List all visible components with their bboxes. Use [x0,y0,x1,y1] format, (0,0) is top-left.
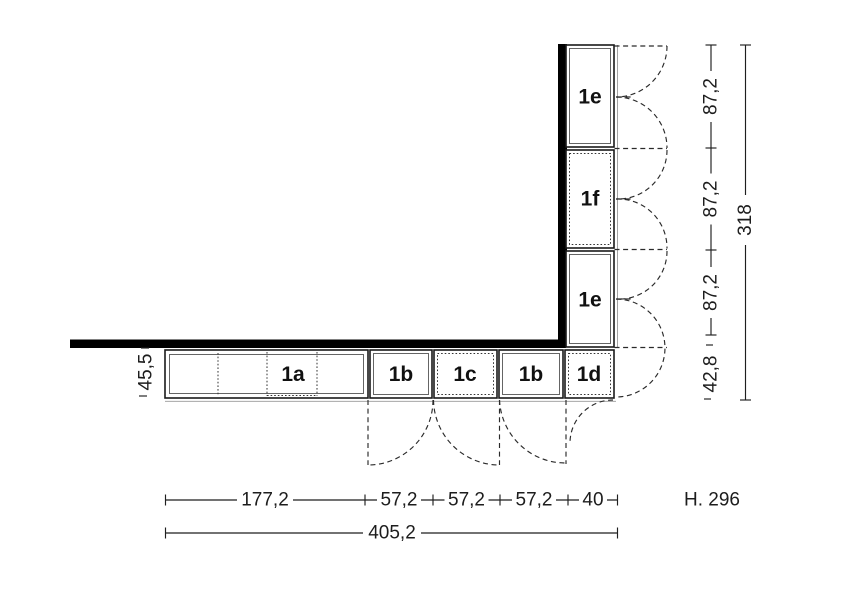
right-dimension-lines: 87,2 87,2 87,2 42,8 318 [700,45,757,400]
row-unit-label-1: 1b [389,363,414,386]
dim-bottom-0: 177,2 [241,490,289,511]
door-swing-arc [368,400,433,465]
stack-unit-label-1: 1f [581,188,601,211]
floor-plan-canvas: 1e 1f 1e 1a 1b 1c 1b 1d [0,0,841,601]
door-swings-row [368,400,613,465]
row-units: 1a 1b 1c 1b 1d [165,350,616,401]
row-unit-label-4: 1d [577,363,602,386]
dim-bottom-3: 57,2 [516,490,553,511]
dim-right-1: 87,2 [701,181,722,218]
door-swing-arc [570,400,613,443]
row-unit-label-2: 1c [453,363,477,386]
dim-right-2: 87,2 [701,274,722,311]
wall-horizontal [70,340,566,349]
left-depth-dimension: 45,5 [136,348,157,396]
dim-right-0: 87,2 [701,78,722,115]
dim-side-depth: 45,5 [136,354,157,391]
dim-bottom-1: 57,2 [381,490,418,511]
door-swing-arc [616,199,667,249]
door-swing-arc [616,150,667,199]
door-swings-stack [615,46,668,397]
dim-bottom-4: 40 [582,490,603,511]
dim-right-total: 318 [735,204,756,236]
door-swing-arc [616,97,667,148]
walls [70,44,567,348]
door-swing-arc [616,46,667,97]
dim-bottom-2: 57,2 [448,490,485,511]
bottom-dimension-lines: 177,2 57,2 57,2 57,2 40 405,2 H. 296 [166,489,740,544]
cabinet-layout-diagram: 1e 1f 1e 1a 1b 1c 1b 1d [0,0,841,601]
row-unit-label-3: 1b [519,363,544,386]
row-unit-label-0: 1a [281,363,305,386]
height-note: H. 296 [684,490,740,511]
stack-unit-label-2: 1e [578,289,601,312]
dim-bottom-total: 405,2 [368,523,416,544]
stack-unit-label-0: 1e [578,86,601,109]
stack-units: 1e 1f 1e [566,45,618,347]
door-swing-arc [434,400,500,465]
door-swing-arc [500,400,567,463]
door-swing-arc [616,251,667,299]
dim-right-3: 42,8 [701,356,722,393]
